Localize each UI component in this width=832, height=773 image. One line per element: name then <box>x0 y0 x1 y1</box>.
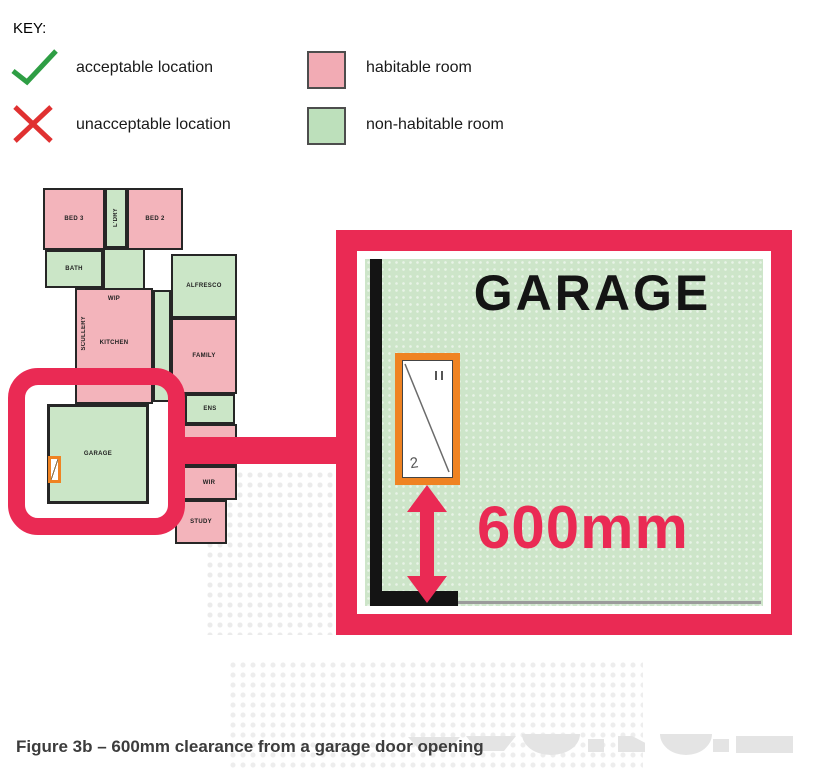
room-label: WIR <box>203 480 216 486</box>
zoom-connector-bar <box>176 437 340 464</box>
room-bed2: BED 2 <box>127 188 183 250</box>
x-icon <box>10 102 56 146</box>
figure-caption: Figure 3b – 600mm clearance from a garag… <box>16 737 484 757</box>
room-alfresco: ALFRESCO <box>171 254 237 318</box>
room-bath: BATH <box>45 250 103 288</box>
room-label-kitchen: KITCHEN <box>100 340 129 346</box>
garage-detail-view: GARAGE 2 600mm <box>336 230 792 635</box>
key-habitable-label: habitable room <box>366 59 472 77</box>
non-habitable-swatch <box>307 107 346 145</box>
room-label: BED 3 <box>64 216 83 222</box>
key-acceptable-label: acceptable location <box>76 59 213 77</box>
key-non-habitable-label: non-habitable room <box>366 116 504 134</box>
clearance-dimension-label: 600mm <box>477 493 689 562</box>
room-label: BED 2 <box>145 216 164 222</box>
room-label: L'DRY <box>113 208 119 227</box>
room-label: FAMILY <box>192 353 215 359</box>
watermark-shape <box>736 736 793 753</box>
habitable-swatch <box>307 51 346 89</box>
check-icon <box>8 47 60 87</box>
garage-highlight-outline <box>8 368 185 535</box>
garage-wall-vertical <box>370 259 382 599</box>
room-label: STUDY <box>190 519 212 525</box>
room-label: BATH <box>65 266 82 272</box>
door-leaf-diagram: 2 <box>402 360 453 478</box>
room-label-scullery: SCULLERY <box>81 316 87 351</box>
clearance-arrow-icon <box>407 485 447 603</box>
door-tag: 2 <box>409 454 420 472</box>
watermark-shape <box>588 739 604 752</box>
garage-detail-panel: GARAGE 2 600mm <box>365 259 763 606</box>
room-label: ENS <box>203 406 216 412</box>
key-unacceptable-label: unacceptable location <box>76 116 231 134</box>
garage-door-opening: 2 <box>395 353 460 485</box>
room-label-wip: WIP <box>108 296 120 302</box>
room-laundry: L'DRY <box>105 188 127 248</box>
room-ens: ENS <box>185 394 235 424</box>
room-wir: WIR <box>181 466 237 500</box>
room-label: ALFRESCO <box>186 283 221 289</box>
watermark-shape <box>713 739 729 752</box>
room-bed3: BED 3 <box>43 188 105 250</box>
garage-floor-line <box>458 601 761 604</box>
figure-3b-page: KEY: acceptable location unacceptable lo… <box>0 0 832 773</box>
key-title: KEY: <box>13 20 46 37</box>
detail-room-label: GARAGE <box>460 264 725 322</box>
watermark-shape <box>660 734 712 755</box>
